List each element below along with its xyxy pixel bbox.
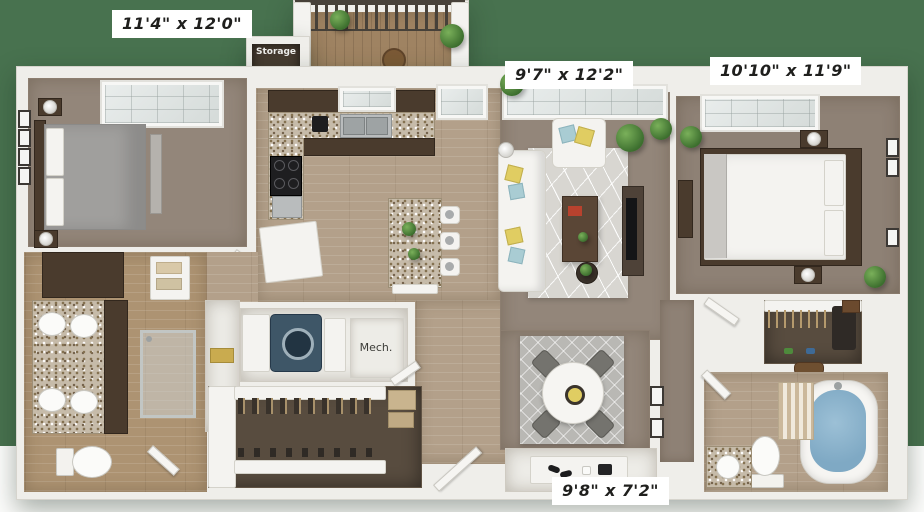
closet1-box-2 (388, 412, 414, 428)
linen-towels-1 (156, 262, 182, 274)
oven-front (272, 196, 302, 218)
vanity-sink-3 (38, 388, 66, 412)
console-camera (598, 464, 612, 475)
toilet1-bowl (72, 446, 112, 478)
dryer (242, 314, 270, 372)
closet1-shoes (238, 448, 378, 457)
bedroom2-pillow-bottom (824, 210, 844, 256)
bedroom2-art-2 (886, 158, 899, 177)
closet2-shoe-green (784, 348, 793, 354)
shower-curtain (778, 382, 814, 440)
bedroom2-plant (864, 266, 886, 288)
closet1-bottom-shelf (234, 460, 386, 474)
bedroom1-lamp-bottom (39, 232, 53, 246)
living-dims-label: 9'7" x 12'2" (505, 61, 633, 89)
sofa-pillow-yellow-2 (505, 227, 524, 246)
floorplan-image: Storage (0, 0, 924, 512)
kitchen-lower-cabinets (302, 138, 435, 156)
island-plant-2 (408, 248, 420, 260)
kitchen-island (388, 198, 442, 288)
closet2-box (842, 300, 860, 313)
closet2-hangers (768, 310, 828, 328)
coffee-table-books (568, 206, 582, 216)
hall-art-2 (650, 418, 664, 438)
dining-centerpiece (565, 385, 585, 405)
bedroom1-window (100, 80, 224, 128)
bedroom1-dims-label: 11'4" x 12'0" (112, 10, 252, 38)
bedroom1-wall-art-3 (18, 148, 31, 166)
bedroom2-art-3 (886, 228, 899, 247)
shower-head (146, 336, 152, 342)
bedroom2-art-1 (886, 138, 899, 157)
shower-enclosure (140, 330, 196, 418)
sofa-pillow-teal-2 (508, 247, 526, 265)
balcony-railing (295, 0, 465, 31)
vanity-sink-2 (70, 314, 98, 338)
bedroom1-lamp-top (43, 100, 57, 114)
living-plant-2 (650, 118, 672, 140)
closet1-hanging-clothes (238, 398, 378, 414)
bedroom1-wall-art-4 (18, 167, 31, 185)
hallway-right-floor (660, 300, 694, 462)
burner-1 (274, 160, 285, 171)
tub-faucet (834, 382, 842, 390)
burner-3 (274, 178, 285, 189)
floor-lamp (498, 142, 514, 158)
toilet2-bowl (750, 436, 780, 476)
kitchen-sink-basin-left (343, 117, 365, 135)
laundry-shelf (324, 318, 346, 372)
kitchen-window (338, 86, 396, 112)
bedroom1-pillow-top (46, 128, 64, 176)
bedroom1-wall-art-1 (18, 110, 31, 128)
dining-dims-label: 9'8" x 7'2" (552, 477, 669, 505)
refrigerator (259, 221, 323, 284)
hall-connector-floor (205, 252, 258, 302)
bedroom2-dims-label: 10'10" x 11'9" (710, 57, 861, 85)
linen-towels-2 (156, 278, 182, 290)
burner-2 (288, 160, 299, 171)
storage-label: Storage (252, 48, 300, 57)
bar-stool-2-seat (445, 236, 454, 245)
bathroom1-vanity-cabinet (104, 300, 128, 434)
tv (626, 198, 637, 260)
washer-door (282, 328, 314, 360)
bathroom1-wardrobe (42, 252, 124, 298)
bathtub-water (810, 390, 866, 472)
bathroom2-sink (716, 455, 740, 479)
kitchen-window-glass (343, 91, 391, 107)
side-table-plant (580, 264, 592, 276)
balcony-door-glass (441, 89, 483, 115)
bedroom2-window-glass (705, 99, 815, 127)
bedroom1-bench (150, 134, 162, 214)
island-plant-1 (402, 222, 416, 236)
bedroom2-lamp-bottom (801, 268, 815, 282)
living-plant-1 (616, 124, 644, 152)
console-cup (582, 466, 591, 475)
bedroom2-window (700, 94, 820, 132)
bedroom2-throw (704, 154, 727, 258)
island-base (392, 284, 438, 294)
burner-4 (288, 178, 299, 189)
vanity-sink-1 (38, 312, 66, 336)
vanity-sink-4 (70, 390, 98, 414)
kitchen-sink-basin-right (366, 117, 388, 135)
bedroom2-window-plant (680, 126, 702, 148)
bar-stool-1-seat (445, 210, 454, 219)
coffee-maker (312, 116, 328, 132)
coffee-table-plant (578, 232, 588, 242)
hall-art-1 (650, 386, 664, 406)
bedroom1-window-glass (105, 85, 219, 123)
linen-gold-box (210, 348, 234, 363)
bar-stool-3-seat (445, 262, 454, 271)
bedroom1-wall-art-2 (18, 129, 31, 147)
closet2-shoe-blue (806, 348, 815, 354)
bedroom2-pillow-top (824, 160, 844, 206)
sofa-pillow-teal-1 (508, 183, 525, 200)
living-window-glass (507, 89, 663, 115)
mech-label: Mech. (350, 342, 402, 353)
balcony-plant-left (330, 10, 350, 30)
bedroom1-pillow-bottom (46, 178, 64, 226)
bedroom2-dresser (678, 180, 693, 238)
closet1-wardrobe (208, 386, 236, 488)
living-window-band (502, 84, 668, 120)
balcony-door (436, 84, 488, 120)
balcony-plant-right (440, 24, 464, 48)
bedroom2-lamp-top (807, 132, 821, 146)
closet1-box-1 (388, 390, 416, 410)
